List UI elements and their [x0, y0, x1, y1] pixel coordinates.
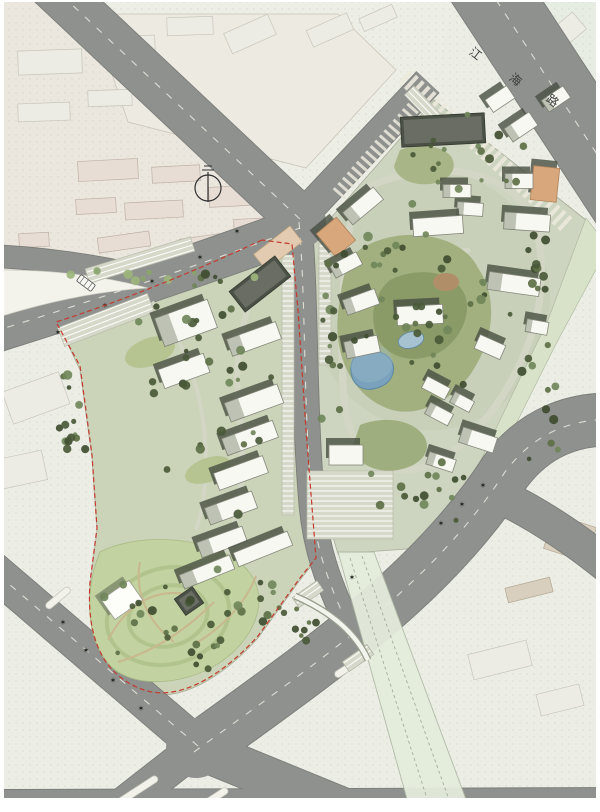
tree — [508, 312, 513, 317]
tree — [217, 427, 226, 436]
tree — [63, 445, 71, 453]
context-building — [18, 49, 83, 75]
tree — [480, 279, 487, 286]
tree — [93, 267, 100, 274]
tree — [150, 389, 158, 397]
tree — [525, 247, 531, 253]
tree — [430, 166, 436, 172]
parking-lot — [282, 255, 294, 515]
tree — [336, 406, 343, 413]
tree — [193, 662, 199, 668]
tree — [130, 603, 136, 609]
tree — [436, 180, 441, 185]
context-building — [167, 16, 214, 36]
site-plan-map: ✶✶✶✶✶✶✶✶✶✶✶✶✶✶✶江海路 — [4, 2, 596, 798]
tree — [320, 318, 325, 323]
tree — [217, 636, 225, 644]
street-tree-symbol: ✶ — [149, 277, 156, 286]
tree — [75, 401, 83, 409]
tree — [251, 430, 256, 435]
tree — [135, 600, 142, 607]
tree — [379, 296, 385, 302]
context-building — [88, 89, 133, 107]
street-tree-symbol: ✶ — [55, 328, 62, 337]
tree — [423, 231, 429, 237]
tree — [413, 321, 419, 327]
tree — [205, 665, 212, 672]
street-tree-symbol: ✶ — [83, 646, 90, 655]
tree — [281, 610, 287, 616]
street-tree-symbol: ✶ — [438, 519, 445, 528]
tree — [432, 472, 440, 480]
tree — [312, 619, 320, 627]
tree — [131, 619, 138, 626]
tree — [541, 236, 550, 245]
tree — [294, 607, 299, 612]
tree — [435, 335, 444, 344]
context-building — [18, 102, 71, 122]
tree — [268, 580, 277, 589]
tree — [224, 610, 231, 617]
tree — [377, 262, 382, 267]
tree — [146, 270, 152, 276]
building — [409, 208, 464, 237]
tree — [545, 387, 551, 393]
building-roof-dark-end — [487, 271, 503, 291]
context-building — [78, 158, 139, 181]
tree — [218, 279, 223, 284]
tree — [67, 434, 75, 442]
tree — [148, 606, 157, 615]
tree — [443, 255, 451, 263]
tree — [135, 318, 142, 325]
tree — [429, 144, 434, 149]
tree — [520, 142, 528, 150]
tree — [207, 621, 215, 629]
tree — [100, 593, 109, 602]
tree — [228, 305, 235, 312]
tree — [409, 360, 414, 365]
tree — [299, 633, 304, 638]
tree — [465, 112, 471, 118]
tree — [517, 367, 526, 376]
building-roof — [530, 166, 559, 203]
tree — [363, 232, 373, 242]
tree — [368, 471, 374, 477]
building-roof — [412, 215, 463, 236]
tree — [392, 242, 400, 250]
tree — [420, 491, 429, 500]
building — [500, 205, 551, 232]
tree — [153, 303, 159, 309]
tree — [436, 487, 441, 492]
tree — [527, 457, 532, 462]
tree — [171, 625, 178, 632]
street-tree-symbol: ✶ — [459, 500, 466, 509]
tree — [545, 342, 551, 348]
site-plan-page: ✶✶✶✶✶✶✶✶✶✶✶✶✶✶✶江海路 — [0, 0, 600, 812]
tree — [302, 637, 310, 645]
tree — [393, 314, 399, 320]
tree — [268, 374, 274, 380]
tree — [532, 260, 541, 269]
tree — [461, 475, 467, 481]
tree — [184, 349, 189, 354]
tree — [431, 138, 437, 144]
street-tree-symbol: ✶ — [349, 573, 356, 582]
tree — [227, 367, 234, 374]
tree — [455, 185, 463, 193]
tree — [413, 496, 419, 502]
context-building — [19, 232, 50, 248]
tree — [140, 276, 146, 282]
tree — [182, 315, 191, 324]
road-junction — [166, 718, 226, 778]
tree — [542, 286, 549, 293]
tree — [351, 337, 358, 344]
tree — [479, 178, 483, 182]
tree — [535, 286, 541, 292]
tree — [442, 147, 447, 152]
tree — [225, 379, 233, 387]
tree — [431, 352, 436, 357]
tree — [418, 303, 426, 311]
tree — [449, 495, 455, 501]
tree — [236, 378, 240, 382]
tree — [318, 415, 326, 423]
context-building — [152, 165, 201, 183]
street-tree-symbol: ✶ — [60, 618, 67, 627]
tree — [194, 318, 199, 323]
tree — [123, 270, 132, 279]
tree — [301, 627, 308, 634]
tree — [399, 245, 405, 251]
tree — [413, 329, 421, 337]
tree — [196, 444, 205, 453]
tree — [219, 311, 227, 319]
building — [326, 438, 363, 465]
building-roof-dark-end — [443, 185, 450, 198]
building — [400, 113, 485, 147]
tree — [436, 161, 441, 166]
context-building — [88, 89, 133, 107]
tree — [397, 482, 406, 491]
building-roof — [329, 445, 363, 465]
tree — [512, 178, 520, 186]
tree — [67, 271, 75, 279]
street-tree-symbol: ✶ — [197, 253, 204, 262]
tree — [71, 419, 76, 424]
tree — [201, 270, 210, 279]
tree — [131, 276, 140, 285]
tree — [307, 620, 312, 625]
context-building — [125, 200, 184, 220]
tree — [371, 262, 378, 269]
tree — [410, 152, 415, 157]
tree — [324, 260, 332, 268]
tree — [401, 493, 408, 500]
tree — [436, 309, 442, 315]
tree — [234, 601, 243, 610]
tree — [234, 509, 243, 518]
tree — [363, 245, 368, 250]
tree — [434, 362, 441, 369]
tree — [468, 301, 474, 307]
building — [522, 311, 550, 335]
tree — [164, 634, 170, 640]
tree — [188, 648, 196, 656]
tree — [328, 344, 333, 349]
tree — [186, 596, 195, 605]
context-building — [18, 49, 83, 75]
tree — [364, 334, 369, 339]
tree — [330, 307, 337, 314]
tree — [341, 250, 349, 258]
building-roof-detail — [403, 116, 482, 144]
tree — [258, 580, 264, 586]
tree — [408, 200, 416, 208]
street-tree-symbol: ✶ — [480, 481, 487, 490]
context-building — [125, 200, 184, 220]
tree — [539, 272, 548, 281]
tree — [393, 268, 398, 273]
lawn-patch — [433, 273, 459, 291]
tree — [376, 501, 385, 510]
tree — [236, 346, 245, 355]
tree — [384, 247, 391, 254]
tree — [224, 589, 231, 596]
tree — [528, 279, 537, 288]
tree — [251, 273, 259, 281]
tree — [438, 265, 446, 273]
tree — [115, 651, 120, 656]
tree — [525, 355, 533, 363]
context-building — [167, 16, 214, 36]
tree — [205, 358, 213, 366]
tree — [549, 415, 558, 424]
tree — [529, 362, 537, 370]
tree — [271, 590, 276, 595]
tree — [183, 354, 190, 361]
tree — [241, 441, 247, 447]
tree — [238, 362, 247, 371]
context-building — [152, 165, 201, 183]
tree — [337, 363, 343, 369]
tree — [452, 476, 459, 483]
tree — [322, 293, 329, 300]
tree — [530, 232, 538, 240]
tree — [438, 458, 446, 466]
tree — [555, 447, 561, 453]
tree — [67, 385, 72, 390]
tree — [195, 334, 202, 341]
context-building — [18, 102, 71, 122]
tree — [504, 179, 509, 184]
tree — [81, 445, 89, 453]
tree — [163, 585, 168, 590]
map-frame: ✶✶✶✶✶✶✶✶✶✶✶✶✶✶✶江海路 — [4, 2, 596, 798]
tree — [402, 323, 411, 332]
tree — [192, 641, 200, 649]
tree — [542, 405, 550, 413]
tree — [548, 440, 555, 447]
context-building — [76, 197, 117, 214]
tree — [460, 381, 467, 388]
tree — [425, 472, 432, 479]
tree — [137, 610, 145, 618]
tree — [255, 437, 263, 445]
tree — [485, 154, 494, 163]
street-tree-symbol: ✶ — [234, 227, 241, 236]
context-building — [78, 158, 139, 181]
tree — [213, 275, 217, 279]
tree — [552, 383, 560, 391]
tree — [164, 466, 171, 473]
tree — [426, 321, 434, 329]
tree — [333, 263, 339, 269]
tree — [420, 500, 429, 509]
tree — [257, 595, 264, 602]
tree — [292, 626, 299, 633]
tree — [214, 566, 222, 574]
tree — [61, 421, 69, 429]
street-tree-symbol: ✶ — [110, 676, 117, 685]
tree — [149, 378, 156, 385]
parking-lot — [282, 255, 294, 515]
tree — [197, 653, 203, 659]
tree — [63, 370, 72, 379]
street-tree-symbol: ✶ — [138, 704, 145, 713]
tree — [494, 131, 503, 140]
tree — [476, 295, 485, 304]
building-roof-dark-end — [503, 212, 516, 230]
tree — [182, 381, 191, 390]
tree — [454, 518, 459, 523]
tree — [443, 326, 452, 335]
tree — [259, 617, 267, 625]
context-building — [76, 197, 117, 214]
tree — [443, 314, 448, 319]
tree — [192, 283, 197, 288]
tree — [477, 147, 485, 155]
tree — [119, 581, 127, 589]
tree — [325, 355, 334, 364]
context-building — [19, 232, 50, 248]
tree — [328, 332, 337, 341]
